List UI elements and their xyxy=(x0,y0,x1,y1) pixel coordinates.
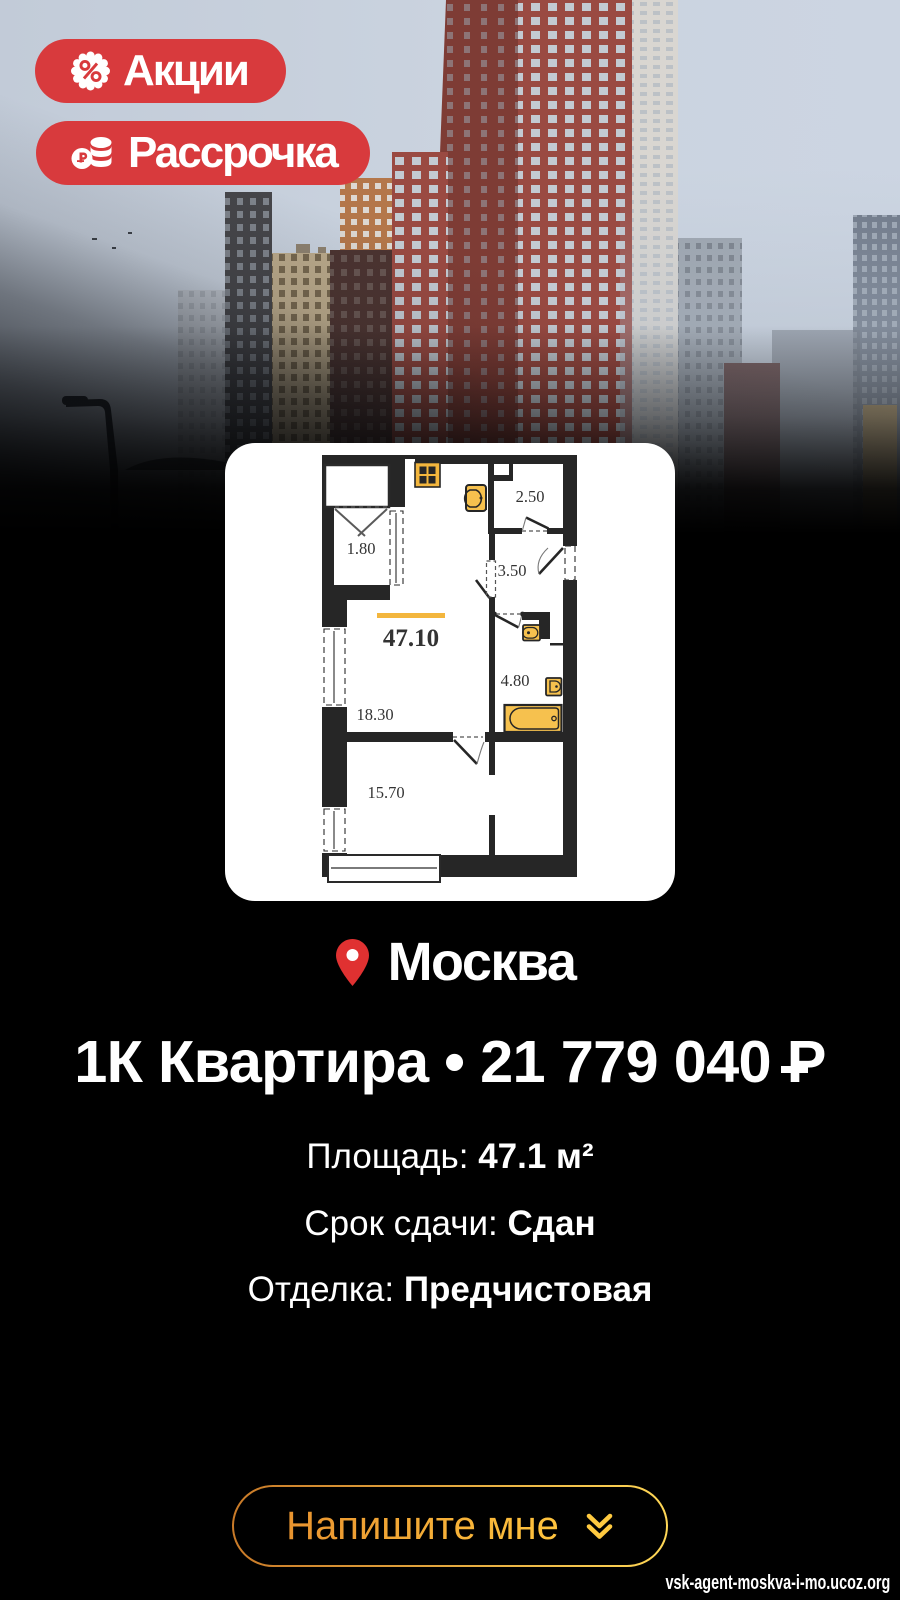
svg-text:1.80: 1.80 xyxy=(347,539,376,558)
svg-text:18.30: 18.30 xyxy=(356,705,393,724)
svg-text:15.70: 15.70 xyxy=(367,783,404,802)
svg-text:4.80: 4.80 xyxy=(501,671,530,690)
svg-text:2.50: 2.50 xyxy=(516,487,545,506)
svg-text:47.10: 47.10 xyxy=(383,625,439,652)
svg-text:3.50: 3.50 xyxy=(498,561,527,580)
